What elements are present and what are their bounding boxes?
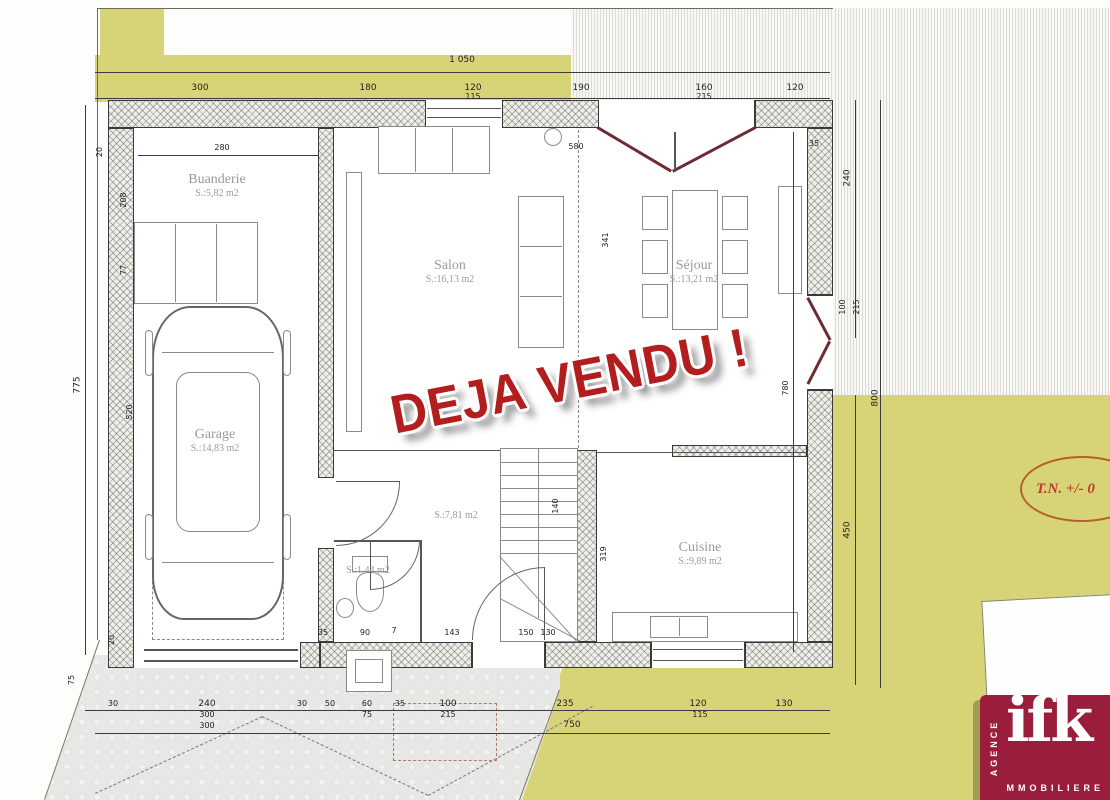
stair-tread — [500, 501, 578, 502]
car-wheel-rr — [283, 514, 291, 560]
plot-boundary-left — [97, 8, 98, 640]
room-label-salon: Salon S.:16,13 m2 — [426, 258, 475, 286]
stair-tread — [500, 527, 578, 528]
room-label-buanderie: Buanderie S.:5,82 m2 — [188, 172, 246, 200]
entry-chevron-pin — [674, 132, 676, 172]
window-salon — [425, 100, 503, 128]
dim-label: 235 — [556, 700, 573, 709]
sideboard — [778, 186, 802, 294]
dim-label: 130 — [540, 629, 555, 637]
room-area: S.:13,21 m2 — [670, 274, 719, 286]
window-cuisine — [651, 642, 745, 668]
dim-label: 520 — [126, 404, 134, 419]
room-name: Buanderie — [188, 172, 246, 188]
dim-label: 300 — [191, 84, 208, 93]
dim-label: 143 — [444, 629, 459, 637]
dim-label: 90 — [360, 629, 370, 637]
sofa-side-div2 — [520, 296, 562, 297]
room-name: Cuisine — [678, 540, 722, 556]
dim-label: 190 — [572, 84, 589, 93]
chair — [642, 284, 668, 318]
room-area: S.:16,13 m2 — [426, 274, 475, 286]
dim-label: 240 — [198, 700, 215, 709]
stair-tread — [500, 462, 578, 463]
room-label-garage: Garage S.:14,83 m2 — [191, 427, 240, 455]
hall-top-line — [334, 450, 500, 451]
cuisine-top-line — [597, 452, 807, 453]
chair — [722, 284, 748, 318]
dim-label: 300 — [199, 722, 214, 730]
sofa-top-div1 — [415, 128, 416, 172]
sofa-top — [378, 126, 490, 174]
ifk-logo: AGENCE ifk MMOBILIERE — [980, 695, 1110, 800]
dim-line — [95, 98, 830, 99]
dim-label: 100 — [839, 299, 847, 314]
garage-hall-door-leaf — [336, 481, 400, 482]
chair — [722, 240, 748, 274]
dim-label: 580 — [568, 143, 583, 151]
room-label-wc: S.:1,44 m2 — [346, 565, 390, 577]
sofa-top-div2 — [452, 128, 453, 172]
dim-left-total: 775 — [74, 376, 83, 393]
logo-brand-text: ifk — [1006, 683, 1090, 756]
tn-level-text: T.N. +/- 0 — [1036, 481, 1095, 498]
dim-label: 150 — [518, 629, 533, 637]
kitchen-sink-divider — [679, 618, 680, 636]
dim-label: 215 — [696, 93, 711, 101]
room-name: Séjour — [670, 258, 719, 274]
dim-label: 450 — [844, 521, 853, 538]
dim-label: 20 — [108, 635, 116, 645]
dim-label: 215 — [440, 711, 455, 719]
dim-line — [138, 155, 318, 156]
dim-label: 35 — [809, 140, 819, 148]
room-area: S.:14,83 m2 — [191, 443, 240, 455]
dim-label: 208 — [120, 192, 128, 207]
car-wheel-fl — [145, 330, 153, 376]
dim-line — [85, 710, 830, 711]
dim-label: 800 — [872, 389, 881, 406]
dim-label: 319 — [600, 546, 608, 561]
wall-bottom-2 — [545, 642, 651, 668]
logo-immobiliere-text: MMOBILIERE — [1007, 783, 1105, 793]
dim-label: 75 — [68, 675, 76, 685]
dim-label: 120 — [786, 84, 803, 93]
garage-door-line1 — [144, 649, 298, 651]
sofa-side — [518, 196, 564, 348]
window-cuisine-line2 — [653, 660, 743, 661]
garden-band-top — [95, 55, 571, 102]
chair — [722, 196, 748, 230]
dim-label: 215 — [853, 299, 861, 314]
plot-boundary-top — [97, 8, 833, 9]
garden-patch-topleft — [100, 8, 164, 56]
dim-label: 115 — [692, 711, 707, 719]
dim-bottom-total: 750 — [563, 721, 580, 730]
wall-top-mid — [502, 100, 599, 128]
dim-label: 180 — [359, 84, 376, 93]
sofa-side-div1 — [520, 246, 562, 247]
dim-line — [95, 72, 830, 73]
garage-door-opening — [134, 642, 300, 668]
wall-stairs — [577, 450, 597, 642]
room-label-cuisine: Cuisine S.:9,89 m2 — [678, 540, 722, 568]
laundry-counter — [134, 222, 258, 304]
dim-label: 7 — [391, 627, 396, 635]
room-area: S.:1,44 m2 — [346, 565, 390, 577]
dim-label: 30 — [297, 700, 307, 708]
stair-tread — [500, 553, 578, 554]
dim-line — [793, 132, 794, 652]
laundry-divider1 — [175, 224, 176, 302]
room-name: Salon — [426, 258, 475, 274]
entry-door-opening — [472, 642, 545, 668]
dim-label: 35 — [318, 629, 328, 637]
dim-label: 341 — [602, 232, 610, 247]
dim-label: 115 — [465, 93, 480, 101]
wall-garage-stub — [300, 642, 320, 668]
dim-line — [855, 395, 856, 685]
dim-label: 35 — [395, 700, 405, 708]
window-cuisine-line1 — [653, 649, 743, 650]
dim-label: 120 — [689, 700, 706, 709]
logo-agence-text: AGENCE — [989, 708, 999, 788]
dim-label: 780 — [782, 380, 790, 395]
dim-label: 240 — [844, 169, 853, 186]
wall-bottom-1 — [320, 642, 472, 668]
floor-plan-image: 1 050 300 180 120 115 190 160 215 120 77… — [0, 0, 1110, 800]
stair-tread — [500, 540, 578, 541]
wc-wall-right — [420, 540, 422, 642]
chair — [642, 196, 668, 230]
dim-label: 280 — [214, 144, 229, 152]
laundry-divider2 — [216, 224, 217, 302]
dim-label: 77 — [120, 265, 128, 275]
dim-label: 140 — [552, 498, 560, 513]
car-hood-line — [162, 352, 274, 353]
dim-label: 300 — [199, 711, 214, 719]
room-name: Garage — [191, 427, 240, 443]
stair-tread — [500, 475, 578, 476]
wall-cuisine-top — [672, 445, 807, 457]
wall-garage-separation-upper — [318, 128, 334, 478]
wall-bottom-3 — [745, 642, 833, 668]
wall-top-left — [108, 100, 426, 128]
chair — [642, 240, 668, 274]
room-label-sejour: Séjour S.:13,21 m2 — [670, 258, 719, 286]
wall-top-right — [755, 100, 833, 128]
dim-line — [85, 105, 86, 655]
window-salon-line2 — [427, 117, 501, 118]
wc-sink — [336, 598, 354, 618]
terrace-hatch-right — [833, 8, 1110, 395]
dim-total-width: 1 050 — [449, 56, 475, 65]
room-label-hall: S.:7,81 m2 — [434, 510, 478, 522]
dim-label: 130 — [775, 700, 792, 709]
car-trunk-line — [162, 562, 274, 563]
dim-label: 30 — [108, 700, 118, 708]
dim-label: 50 — [325, 700, 335, 708]
wall-right-lower — [807, 390, 833, 642]
tv-unit — [346, 172, 362, 432]
wall-right-upper — [807, 128, 833, 295]
dim-label: 100 — [439, 700, 456, 709]
dim-label: 20 — [96, 147, 104, 157]
room-area: S.:5,82 m2 — [188, 188, 246, 200]
car-wheel-rl — [145, 514, 153, 560]
room-area: S.:7,81 m2 — [434, 510, 478, 522]
stair-tread — [500, 514, 578, 515]
dim-label: 60 — [362, 700, 372, 708]
dim-line — [95, 733, 830, 734]
garage-door-line2 — [144, 660, 298, 662]
smoke-detector — [544, 128, 562, 146]
boiler-inner — [355, 659, 383, 683]
car-wheel-fr — [283, 330, 291, 376]
room-area: S.:9,89 m2 — [678, 556, 722, 568]
porch-opening — [598, 100, 755, 128]
stair-tread — [500, 488, 578, 489]
dim-label: 75 — [362, 711, 372, 719]
window-salon-line1 — [427, 108, 501, 109]
wall-left — [108, 128, 134, 668]
